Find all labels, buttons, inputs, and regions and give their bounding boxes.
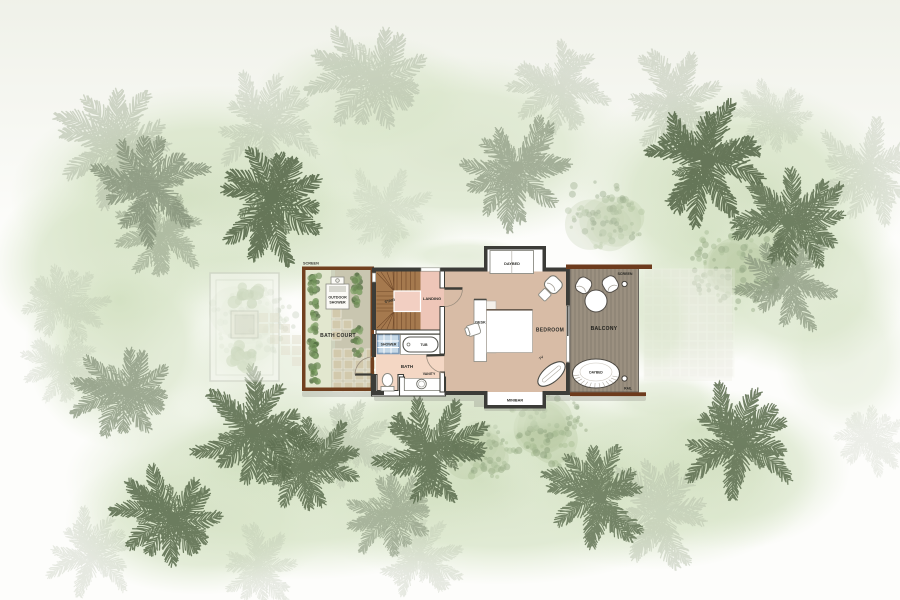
svg-text:RAIL: RAIL: [624, 387, 631, 391]
svg-text:BALCONY: BALCONY: [591, 326, 618, 332]
svg-text:SHOWER: SHOWER: [329, 301, 346, 305]
svg-text:VANITY: VANITY: [423, 372, 436, 376]
svg-text:SHOWER: SHOWER: [381, 343, 397, 347]
svg-text:TUB: TUB: [420, 343, 428, 347]
svg-text:DESK: DESK: [475, 321, 486, 325]
svg-text:DAYBED: DAYBED: [589, 371, 603, 375]
svg-text:OUTDOOR: OUTDOOR: [328, 296, 347, 300]
svg-text:MINIBAR: MINIBAR: [507, 399, 523, 403]
svg-text:DAYBED: DAYBED: [504, 262, 520, 266]
svg-text:SCREEN: SCREEN: [618, 272, 633, 276]
svg-text:BATH COURT: BATH COURT: [320, 333, 356, 339]
svg-text:BATH: BATH: [401, 364, 413, 369]
svg-text:SCREEN: SCREEN: [303, 262, 319, 266]
svg-text:BEDROOM: BEDROOM: [536, 328, 564, 334]
svg-text:LANDING: LANDING: [423, 296, 441, 301]
